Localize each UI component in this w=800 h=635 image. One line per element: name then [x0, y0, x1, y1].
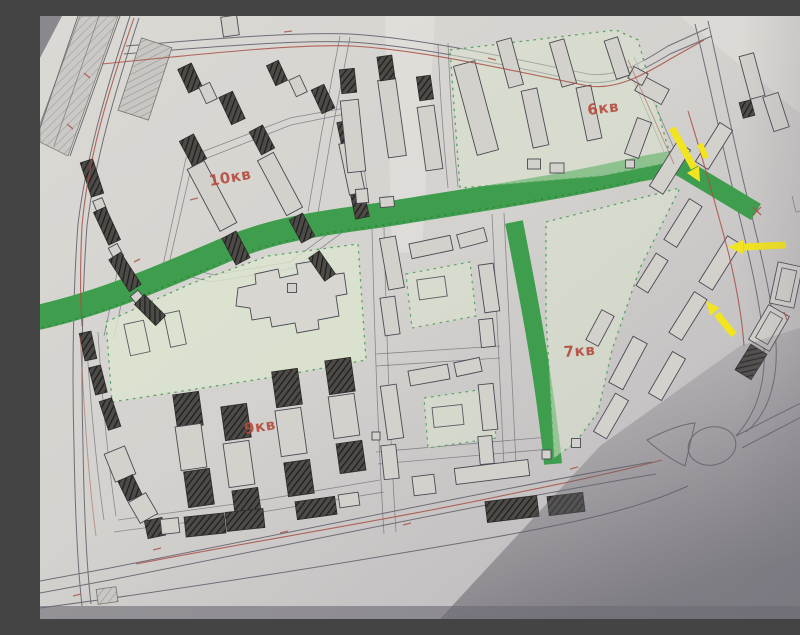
building — [479, 318, 496, 347]
building — [221, 16, 240, 37]
building — [355, 189, 368, 204]
building — [338, 492, 360, 508]
building — [272, 368, 303, 407]
building — [225, 509, 265, 532]
building — [160, 518, 179, 535]
building — [184, 468, 215, 507]
building — [96, 587, 118, 605]
building — [412, 474, 436, 496]
building — [328, 393, 360, 438]
site-plan-canvas: 10кв 9кв 6кв 7кв — [40, 16, 800, 619]
building — [284, 459, 314, 496]
quarter-label-6kv: 6кв — [586, 97, 620, 119]
building — [377, 55, 395, 81]
building — [626, 160, 635, 168]
building — [542, 450, 551, 459]
building — [478, 435, 494, 464]
building — [336, 440, 366, 473]
building — [416, 75, 433, 101]
building — [173, 391, 203, 428]
site-plan-photo: 10кв 9кв 6кв 7кв — [40, 16, 800, 619]
building — [175, 423, 207, 470]
building — [381, 444, 399, 479]
building — [528, 159, 541, 169]
building — [380, 196, 395, 207]
building — [288, 284, 297, 293]
building — [339, 68, 356, 93]
building — [184, 513, 226, 537]
building — [325, 357, 355, 394]
quarter-label-7kv: 7кв — [563, 341, 596, 361]
building — [223, 440, 255, 487]
building — [550, 163, 564, 173]
building — [572, 439, 581, 448]
building — [372, 432, 380, 440]
